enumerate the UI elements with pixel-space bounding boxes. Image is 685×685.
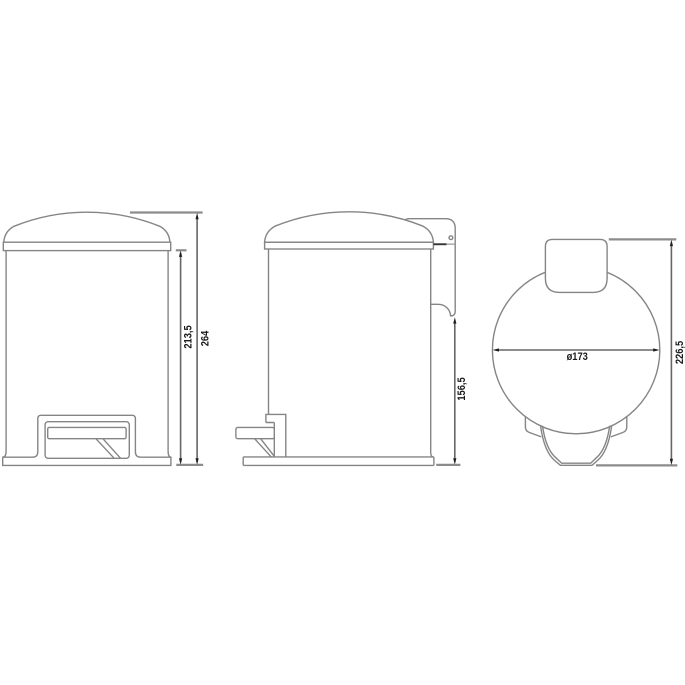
svg-text:213,5: 213,5 (183, 325, 195, 349)
svg-text:264: 264 (200, 330, 212, 346)
svg-text:ø173: ø173 (567, 351, 589, 363)
svg-text:156,5: 156,5 (456, 377, 468, 401)
svg-text:226,5: 226,5 (674, 341, 685, 365)
